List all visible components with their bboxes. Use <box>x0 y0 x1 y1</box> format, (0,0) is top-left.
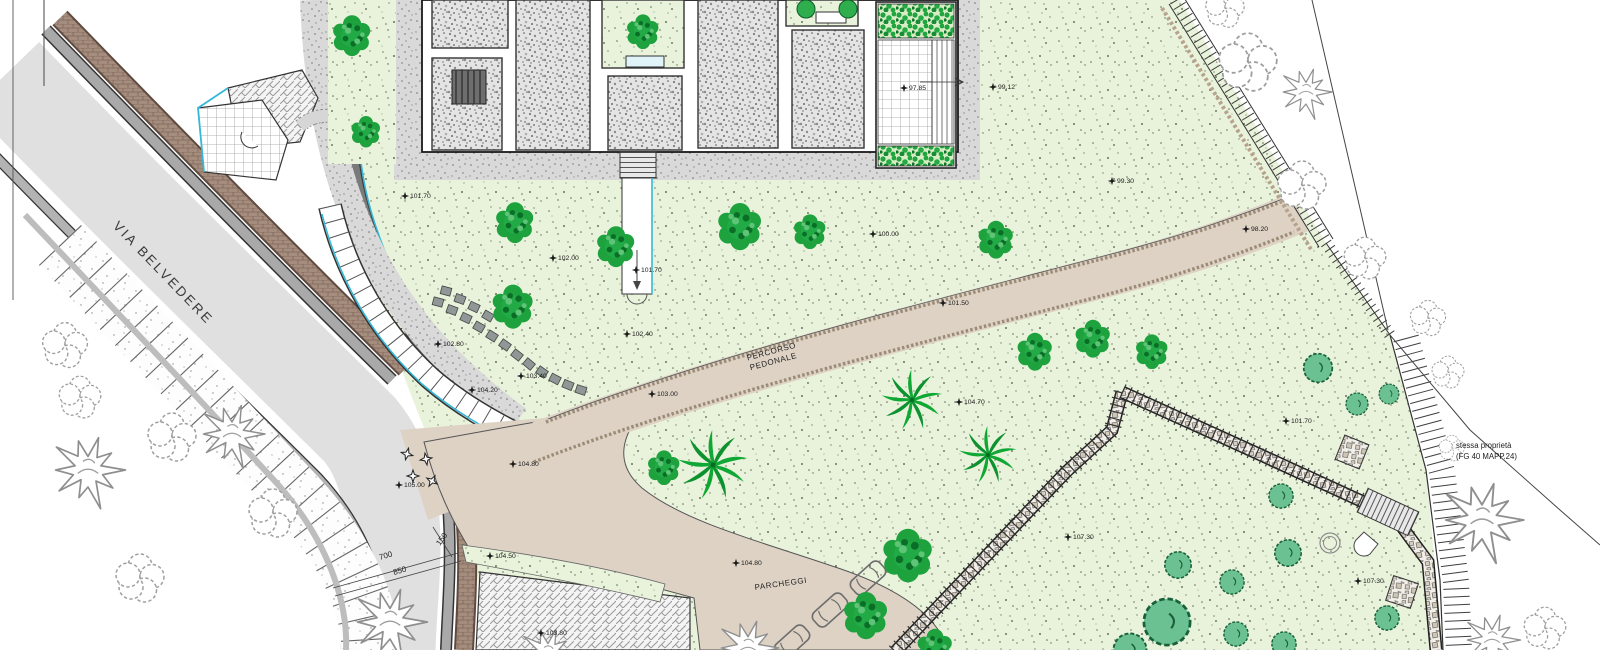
elevation-value: 101.70 <box>1291 418 1312 425</box>
elevation-value: 98.20 <box>1251 226 1268 233</box>
elevation-value: 101.70 <box>641 267 662 274</box>
roof-block-4 <box>608 76 682 150</box>
round-tree <box>1224 622 1248 646</box>
elevation-marker: 99.30 <box>1108 177 1134 185</box>
roof-block-3 <box>516 0 590 150</box>
sidewalk-upper2 <box>446 505 450 650</box>
elevation-marker: 98.20 <box>1242 225 1268 233</box>
round-tree <box>1144 599 1190 645</box>
courtyard-2-tree <box>797 0 815 18</box>
skylight <box>452 70 486 104</box>
elevation-marker: 103.00 <box>648 390 678 398</box>
round-tree <box>1269 484 1293 508</box>
elevation-marker: 104.50 <box>486 552 516 560</box>
elevation-marker: 107.30 <box>1354 577 1384 585</box>
elevation-value: 107.30 <box>1363 578 1384 585</box>
round-tree <box>1304 354 1333 383</box>
elevation-value: 103.80 <box>546 630 567 637</box>
round-tree <box>1375 606 1399 630</box>
pergola-ramp-stripes <box>932 40 954 144</box>
round-tree <box>1379 384 1399 404</box>
elevation-value: 102.80 <box>443 341 464 348</box>
elevation-value: 101.70 <box>410 193 431 200</box>
courtyard-1-bench <box>626 56 664 67</box>
note-line1: stessa proprietà <box>1456 441 1512 450</box>
elevation-value: 103.40 <box>526 373 547 380</box>
round-tree <box>1346 393 1368 415</box>
roof-block-6 <box>792 30 864 148</box>
round-tree <box>1220 570 1244 594</box>
elevation-marker: 103.80 <box>537 629 567 637</box>
pergola-hedge-top <box>878 4 954 38</box>
site-plan-canvas: VIA BELVEDERE <box>0 0 1600 650</box>
elevation-marker: 101.70 <box>632 266 662 274</box>
building-steps <box>620 152 656 178</box>
roof-block-1 <box>432 0 508 48</box>
elevation-value: 104.70 <box>964 399 985 406</box>
elevation-value: 99.12 <box>998 84 1015 91</box>
elevation-marker: 101.70 <box>1282 417 1312 425</box>
elevation-value: 102.00 <box>558 255 579 262</box>
courtyard-2-tree <box>839 0 857 18</box>
elevation-marker: 102.40 <box>623 330 653 338</box>
round-tree <box>1275 540 1301 566</box>
elevation-value: 105.00 <box>404 482 425 489</box>
elevation-marker: 104.70 <box>955 398 985 406</box>
elevation-marker: 105.00 <box>395 481 425 489</box>
elevation-value: 103.00 <box>657 391 678 398</box>
elevation-marker: 104.80 <box>509 460 539 468</box>
elevation-marker: 102.80 <box>434 340 464 348</box>
round-tree <box>1165 552 1191 578</box>
elevation-value: 99.30 <box>1117 178 1134 185</box>
elevation-value: 101.50 <box>948 300 969 307</box>
elevation-marker: 104.80 <box>732 559 762 567</box>
elevation-marker: 101.70 <box>401 192 431 200</box>
elevation-value: 102.40 <box>632 331 653 338</box>
pergola-grid-paving <box>878 40 932 144</box>
elevation-marker: 97.85 <box>900 84 926 92</box>
elevation-marker: 101.50 <box>939 299 969 307</box>
elevation-value: 107.30 <box>1073 534 1094 541</box>
elevation-value: 104.80 <box>518 461 539 468</box>
roof-block-5 <box>698 0 778 148</box>
elevation-marker: 104.20 <box>468 386 498 394</box>
elevation-value: 104.50 <box>495 553 516 560</box>
elevation-marker: 107.30 <box>1064 533 1094 541</box>
note-line2: (FG 40 MAPP.24) <box>1456 452 1517 461</box>
elevation-marker: 99.12 <box>989 83 1015 91</box>
site-plan-drawing: VIA BELVEDERE <box>0 0 1600 650</box>
elevation-value: 97.85 <box>909 85 926 92</box>
elevation-marker: 103.40 <box>517 372 547 380</box>
elevation-value: 104.20 <box>477 387 498 394</box>
elevation-value: 100.00 <box>878 231 899 238</box>
elevation-value: 104.80 <box>741 560 762 567</box>
pergola-hedge-bottom <box>878 146 954 166</box>
elevation-marker: 100.00 <box>869 230 899 238</box>
elevation-marker: 102.00 <box>549 254 579 262</box>
